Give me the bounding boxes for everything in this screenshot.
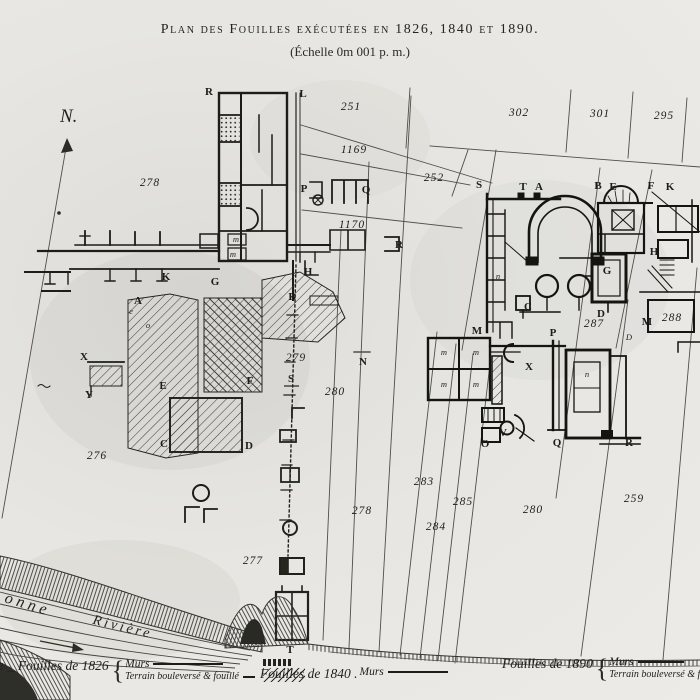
plan-drawing [0,0,700,700]
engraved-plan-page: Plan des Fouilles exécutées en 1826, 184… [0,0,700,700]
north-arrow [57,138,73,215]
